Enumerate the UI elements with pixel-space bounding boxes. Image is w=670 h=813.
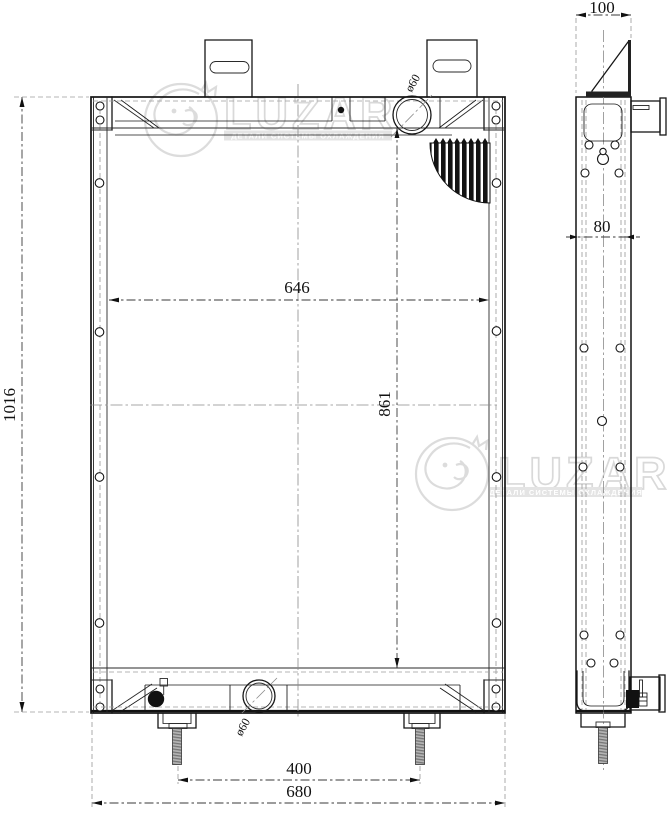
fan-shroud-corner	[430, 138, 490, 203]
watermark-tagline-text: ДЕТАЛИ СИСТЕМЫ ОХЛАЖДЕНИЯ	[489, 488, 643, 497]
watermark-top: LUZAR ДЕТАЛИ СИСТЕМЫ ОХЛАЖДЕНИЯ	[145, 83, 396, 156]
steam-vent-dot	[338, 107, 344, 113]
drain-cock	[626, 690, 639, 708]
top-neck-diameter-label: ø60	[402, 72, 423, 95]
watermark-middle: LUZAR ДЕТАЛИ СИСТЕМЫ ОХЛАЖДЕНИЯ	[416, 437, 670, 510]
side-top-tank	[584, 104, 622, 141]
mounting-stud-left	[158, 713, 196, 765]
side-outlet-pipe	[626, 675, 665, 712]
front-dimensions: 1016 646 861 400 680	[0, 97, 505, 808]
radiator-technical-drawing: LUZAR ДЕТАЛИ СИСТЕМЫ ОХЛАЖДЕНИЯ LUZAR ДЕ…	[0, 0, 670, 813]
top-bracket-right	[427, 40, 477, 97]
bracket-slot	[433, 60, 471, 72]
front-view: ø60 ø60	[90, 40, 505, 765]
dim-depth-label: 100	[589, 0, 615, 17]
dim-overall-height-label: 1016	[0, 388, 19, 422]
drain-plug	[148, 679, 168, 708]
bottom-neck-diameter-label: ø60	[232, 716, 253, 739]
corner-plate-top-right	[439, 97, 505, 130]
side-top-bracket	[586, 40, 631, 97]
dragon-logo-icon	[416, 437, 488, 510]
side-dimensions: 100 80	[566, 0, 640, 239]
dragon-logo-icon	[145, 83, 217, 156]
outlet-neck	[242, 678, 277, 713]
bracket-slot	[210, 62, 249, 74]
side-view	[576, 30, 666, 770]
dim-stud-spacing-label: 400	[286, 759, 312, 778]
dim-core-height-label: 861	[375, 391, 394, 417]
mounting-stud-right	[404, 713, 440, 765]
side-mounting-stud	[581, 713, 625, 764]
watermark-tagline-text: ДЕТАЛИ СИСТЕМЫ ОХЛАЖДЕНИЯ	[231, 131, 385, 140]
dim-core-width-label: 646	[284, 278, 310, 297]
drawing-canvas: LUZAR ДЕТАЛИ СИСТЕМЫ ОХЛАЖДЕНИЯ LUZAR ДЕ…	[0, 0, 670, 813]
dim-overall-width-label: 680	[286, 782, 312, 801]
dim-hole-spacing-label: 80	[594, 217, 611, 236]
side-inlet-pipe	[631, 98, 666, 135]
